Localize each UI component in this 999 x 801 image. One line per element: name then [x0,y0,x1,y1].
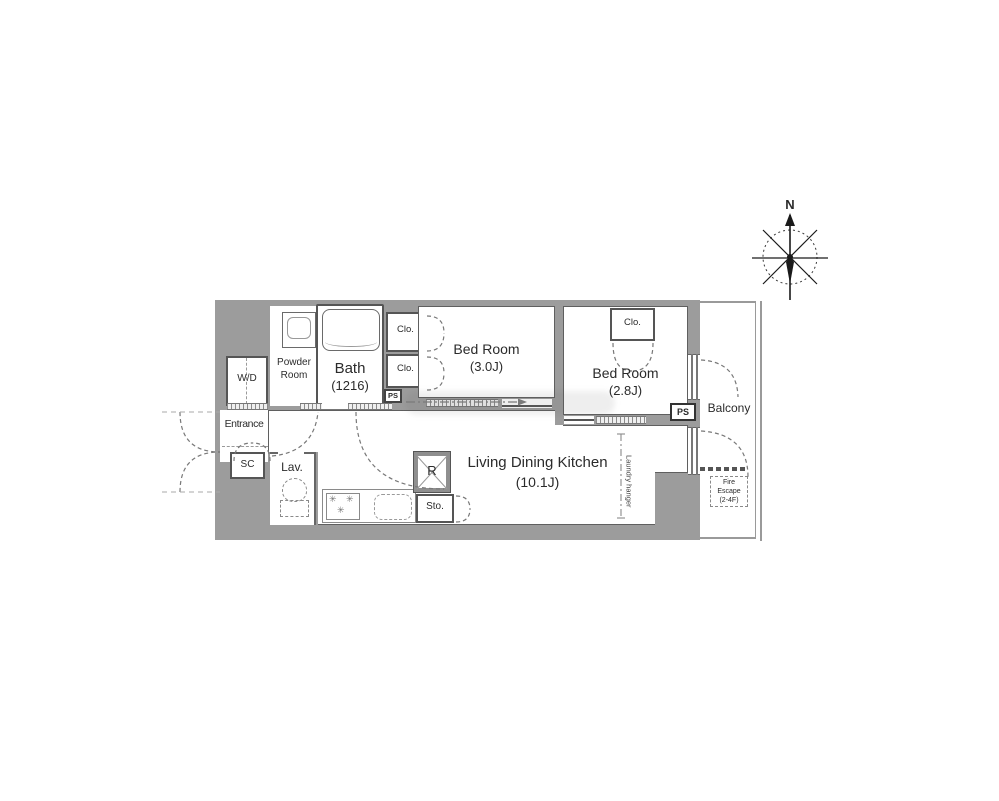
fire-escape-label-1: Fire [710,479,748,487]
powder-room-label-1: Powder [270,357,318,369]
closet2-petal-b [427,373,444,390]
balcony-door-arc-bedroom2 [701,360,738,397]
ps-balcony-label: PS [670,407,696,417]
powder-room-label-2: Room [270,370,318,382]
refrigerator-label: R [414,464,450,479]
floor-plan-page: ✳ ✳ ✳ [0,0,999,801]
bath-door-arc [272,412,318,456]
compass-south-needle [786,257,794,284]
compass-rose [752,213,828,300]
closet1-petal-a [427,316,444,333]
storage-door-petal-a [456,496,470,509]
lav-label: Lav. [270,461,314,475]
plan-linework [0,0,999,801]
storage-door-petal-b [456,509,470,522]
laundry-hanger-label: Laundry hanger [624,441,633,521]
closet1-label: Clo. [386,325,425,336]
closet3-label: Clo. [610,318,655,329]
ldk-label: Living Dining Kitchen [455,454,620,471]
entrance-outer-arc-bottom [180,452,220,492]
storage-label: Sto. [416,501,454,513]
fire-escape-label-3: (2-4F) [710,497,748,505]
bedroom1-size-label: (3.0J) [418,360,555,375]
entrance-label: Entrance [219,418,269,430]
bedroom2-size-label: (2.8J) [563,384,688,399]
bath-size-label: (1216) [316,379,384,394]
compass-hub [787,254,793,260]
bath-label: Bath [316,360,384,377]
sc-label: SC [230,459,265,471]
balcony-label: Balcony [700,402,758,416]
section-arrow-head [518,399,527,406]
entrance-outer-arc-top [180,412,220,452]
ps-small-label: PS [384,392,402,401]
fire-escape-label-2: Escape [710,488,748,496]
bedroom1-label: Bed Room [418,341,555,357]
wd-label: W/D [226,373,268,385]
compass-north-label: N [782,198,798,213]
ldk-size-label: (10.1J) [455,474,620,490]
compass-north-needle [785,213,795,226]
bedroom2-label: Bed Room [563,365,688,381]
